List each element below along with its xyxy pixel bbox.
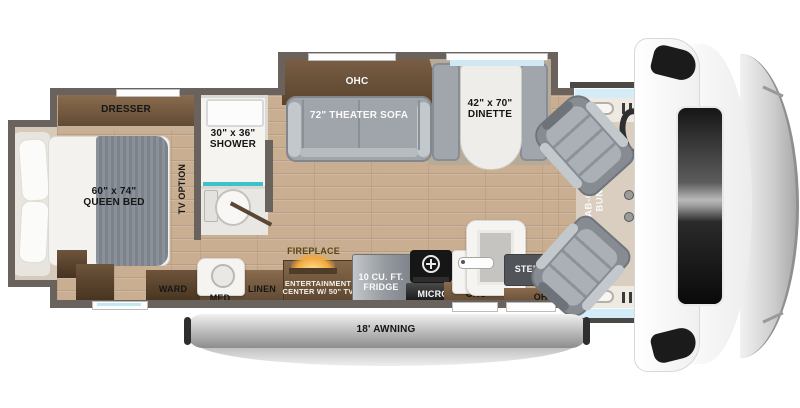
bedroom-window [116,89,180,97]
bedroom-bottom-window-glass [97,303,141,306]
fireplace-hearth [289,268,337,274]
door-hinge [629,292,632,303]
entertainment-label: ENTERTAINMENT CENTER W/ 50" TV [281,280,355,297]
windshield [676,106,724,306]
entertainment-line2: CENTER W/ 50" TV [281,288,355,296]
bath-wall-stub [265,140,273,212]
pillow [18,138,50,202]
wall-bedslide-left [8,120,15,287]
awning-label: 18' AWNING [286,324,486,335]
fireplace-label: FIREPLACE [271,246,356,256]
vanity-sink [211,264,235,288]
nightstand [76,264,114,301]
console-knob [624,190,634,200]
wall-slide-left [278,52,285,95]
dinette-label: 42" x 70" DINETTE [452,98,528,120]
toilet-bowl [215,189,251,226]
dinette-name: DINETTE [452,109,528,120]
galley-bottom-window [452,302,498,312]
door-hinge [622,292,625,303]
dinette-size: 42" x 70" [452,98,528,109]
shower-skylight [206,99,264,127]
ward-label: WARD [146,284,200,294]
sofa-slide-window [308,53,396,61]
bed-size: 60" x 74" [58,186,170,197]
awning-end-cap [184,317,191,345]
dresser-edge [58,126,194,131]
ohc-sofa-label: OHC [292,76,422,87]
shower-size: 30" x 36" [198,128,268,139]
pillow [18,200,49,263]
burner-cross-h [426,263,436,265]
fridge-line2: FRIDGE [352,282,410,292]
sofa-label: 72" THEATER SOFA [288,110,430,121]
linen-label: LINEN [240,284,284,294]
fridge-label: 10 CU. FT. FRIDGE [352,272,410,292]
dinette-window-glass [450,60,544,66]
wall-bedslide-bottom [8,280,57,287]
awning-end-cap [583,317,590,345]
rv-floorplan: DRESSER 60" x 74" QUEEN BED TV OPTION 30… [0,0,800,408]
wall-bedslide-top [8,120,57,127]
console-knob [624,212,634,222]
shower-threshold [203,182,263,186]
queen-bed-label: 60" x 74" QUEEN BED [58,186,170,208]
entry-door-handle-dot [461,260,465,264]
bedroom-bath-wall [194,95,201,240]
tv-option-label: TV OPTION [177,139,187,239]
bed-type: QUEEN BED [58,197,170,208]
fridge-line1: 10 CU. FT. [352,272,410,282]
dresser-label: DRESSER [60,104,192,115]
galley-bottom-window [506,302,556,312]
shower-label: 30" x 36" SHOWER [198,128,268,150]
sofa-front-edge [300,148,418,157]
shower-name: SHOWER [198,139,268,150]
sofa-cushion-seams [302,100,420,150]
